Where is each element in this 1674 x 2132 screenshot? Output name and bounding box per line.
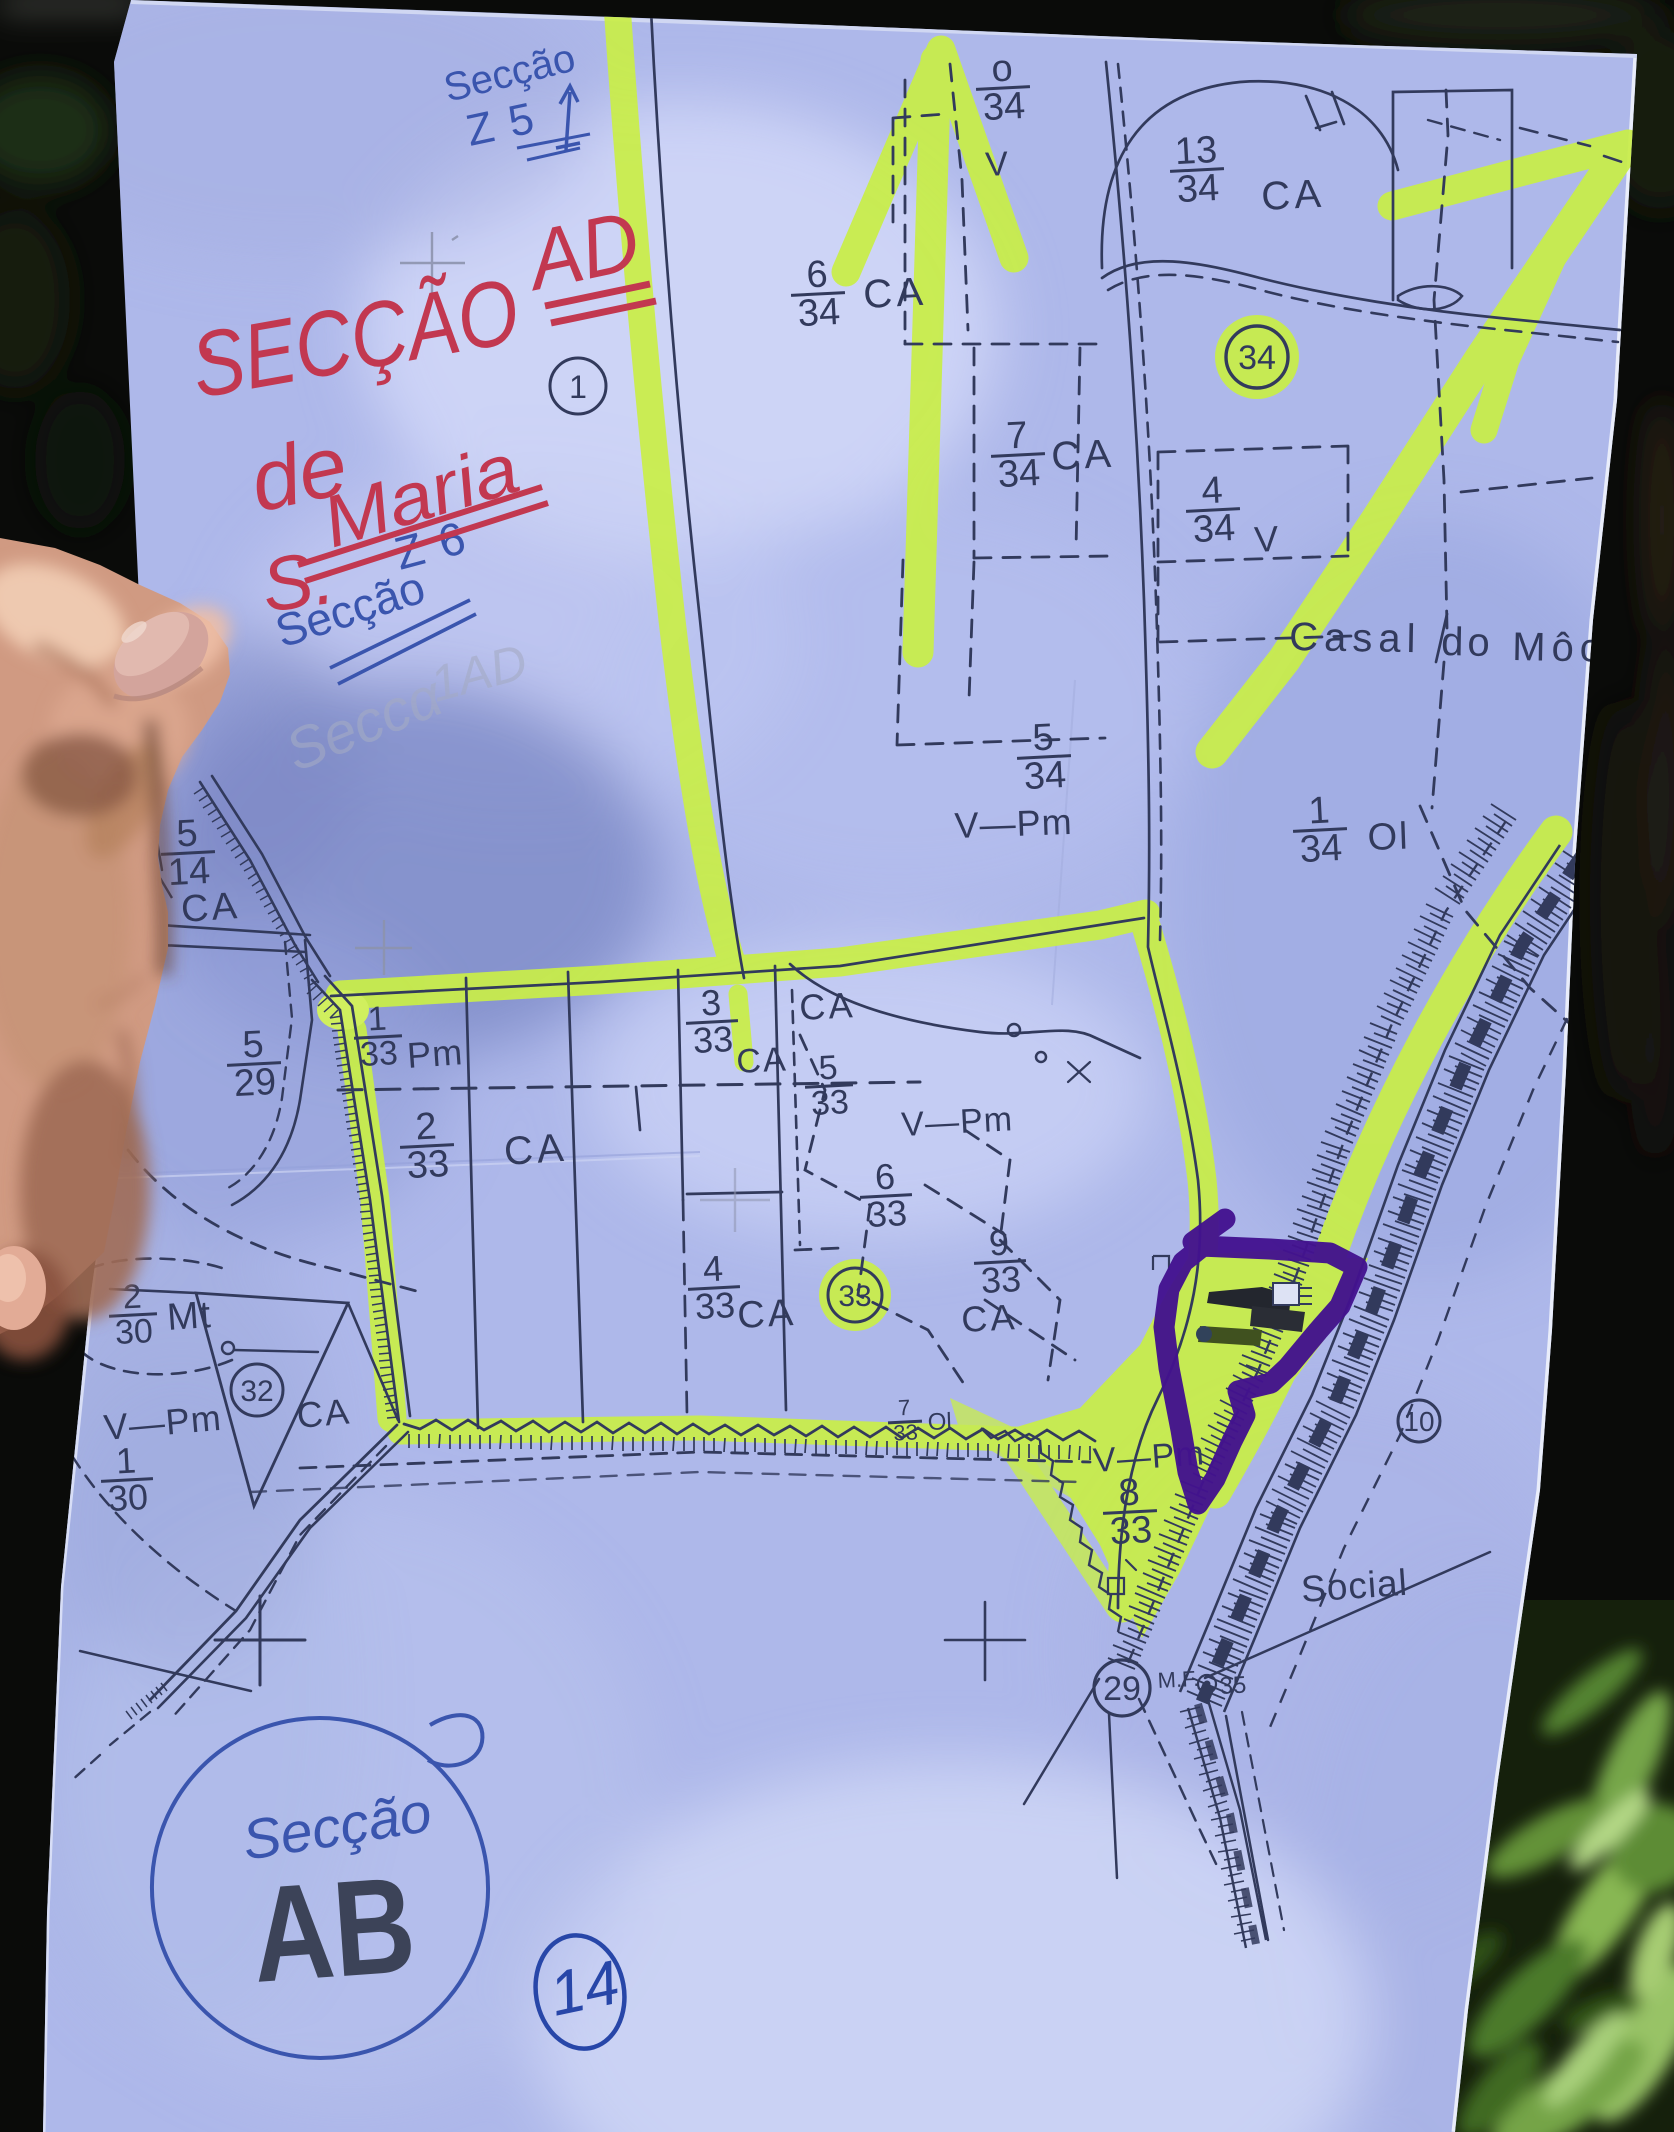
svg-text:33: 33 [810, 1083, 850, 1123]
svg-text:1: 1 [115, 1440, 137, 1482]
svg-text:CA: CA [180, 885, 242, 931]
svg-text:2: 2 [414, 1106, 437, 1149]
svg-text:S.: S. [257, 535, 340, 629]
svg-text:CA: CA [736, 1292, 797, 1337]
svg-text:30: 30 [114, 1312, 154, 1352]
svg-text:CA: CA [798, 984, 856, 1028]
svg-text:7: 7 [897, 1395, 911, 1421]
svg-text:30: 30 [107, 1476, 149, 1519]
svg-text:1: 1 [1307, 790, 1330, 833]
svg-text:CA: CA [735, 1040, 788, 1081]
svg-text:33: 33 [866, 1192, 908, 1235]
svg-text:34: 34 [1299, 827, 1343, 871]
svg-text:5: 5 [241, 1024, 264, 1067]
svg-text:8: 8 [1117, 1472, 1140, 1515]
svg-text:1: 1 [569, 369, 587, 405]
svg-text:CA: CA [862, 270, 928, 317]
svg-text:3: 3 [700, 982, 722, 1024]
svg-text:33: 33 [1109, 1509, 1153, 1553]
svg-text:34: 34 [1238, 339, 1276, 377]
svg-text:CA: CA [1260, 172, 1326, 219]
svg-text:Ol: Ol [1367, 816, 1410, 859]
svg-text:5: 5 [818, 1049, 839, 1088]
svg-text:33: 33 [838, 1280, 871, 1313]
svg-text:do: do [1441, 620, 1494, 665]
svg-text:AB: AB [247, 1848, 419, 2011]
svg-text:33: 33 [406, 1143, 450, 1187]
svg-text:4: 4 [702, 1248, 724, 1290]
svg-text:32: 32 [240, 1375, 273, 1408]
svg-text:V—Pm: V—Pm [954, 801, 1073, 846]
svg-text:V—Pm: V—Pm [900, 1100, 1014, 1144]
svg-text:34: 34 [1176, 167, 1220, 211]
svg-text:34: 34 [797, 291, 841, 335]
svg-text:Social: Social [1300, 1562, 1409, 1610]
svg-text:M.F.: M.F. [1157, 1666, 1200, 1693]
svg-text:5: 5 [1031, 717, 1054, 760]
svg-text:Ol: Ol [927, 1408, 952, 1436]
svg-text:33: 33 [692, 1018, 734, 1061]
svg-text:CA: CA [1050, 432, 1116, 479]
svg-text:CA: CA [960, 1296, 1018, 1340]
svg-text:Casal: Casal [1289, 615, 1422, 661]
svg-text:5: 5 [175, 813, 198, 856]
svg-text:33: 33 [980, 1258, 1022, 1301]
svg-text:9: 9 [988, 1222, 1010, 1264]
svg-text:34: 34 [982, 85, 1026, 129]
svg-text:CA: CA [503, 1126, 569, 1174]
svg-text:Mt: Mt [166, 1294, 213, 1339]
svg-text:29: 29 [1103, 1670, 1141, 1708]
svg-text:14: 14 [544, 1948, 626, 2030]
svg-text:33: 33 [893, 1419, 919, 1445]
svg-text:10: 10 [1403, 1406, 1434, 1437]
svg-text:34: 34 [1023, 754, 1067, 798]
svg-text:34: 34 [997, 452, 1041, 496]
svg-text:6: 6 [805, 254, 828, 297]
svg-text:CA: CA [295, 1390, 352, 1436]
svg-text:7: 7 [1005, 415, 1028, 458]
svg-text:o: o [990, 48, 1013, 91]
svg-text:34: 34 [1192, 507, 1236, 551]
svg-text:V: V [1253, 518, 1279, 560]
svg-text:35: 35 [1219, 1672, 1247, 1700]
svg-text:V: V [984, 145, 1009, 184]
svg-text:6: 6 [874, 1156, 896, 1198]
svg-text:1: 1 [367, 1000, 388, 1039]
svg-text:Pm: Pm [406, 1031, 465, 1076]
svg-text:29: 29 [233, 1061, 277, 1105]
svg-text:33: 33 [694, 1284, 736, 1327]
svg-text:33: 33 [359, 1034, 399, 1074]
svg-text:4: 4 [1200, 470, 1223, 513]
